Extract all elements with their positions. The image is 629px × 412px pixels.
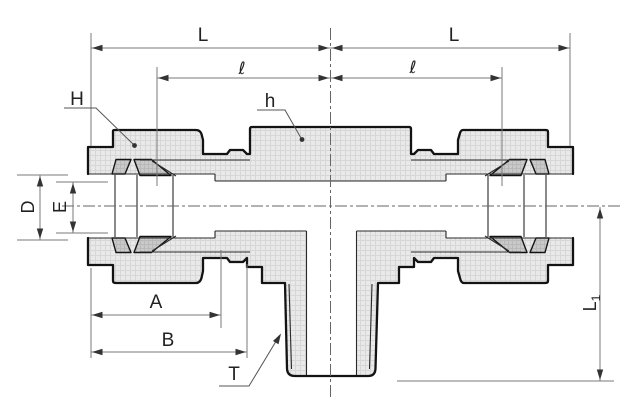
- dim-label-E: E: [50, 201, 70, 213]
- dim-label-L1: L1: [580, 294, 603, 311]
- drawing-canvas: L L ℓ ℓ H h A B T D E L1: [0, 0, 629, 412]
- leader-T-arrow: [273, 332, 284, 344]
- leader-H-dot: [132, 143, 137, 148]
- label-H: H: [70, 89, 84, 110]
- dim-label-B: B: [162, 330, 175, 351]
- dim-label-D: D: [18, 201, 38, 214]
- dim-label-l-right: ℓ: [408, 58, 416, 78]
- label-T: T: [228, 364, 240, 385]
- dim-label-A: A: [150, 292, 163, 313]
- leader-h-dot: [300, 137, 305, 142]
- fitting-technical-drawing: L L ℓ ℓ H h A B T D E L1: [0, 0, 629, 412]
- branch-bore: [307, 231, 357, 375]
- dim-label-l-left: ℓ: [237, 59, 245, 79]
- dim-label-L-right: L: [449, 25, 460, 46]
- label-h: h: [265, 91, 276, 112]
- dim-label-L-left: L: [198, 25, 209, 46]
